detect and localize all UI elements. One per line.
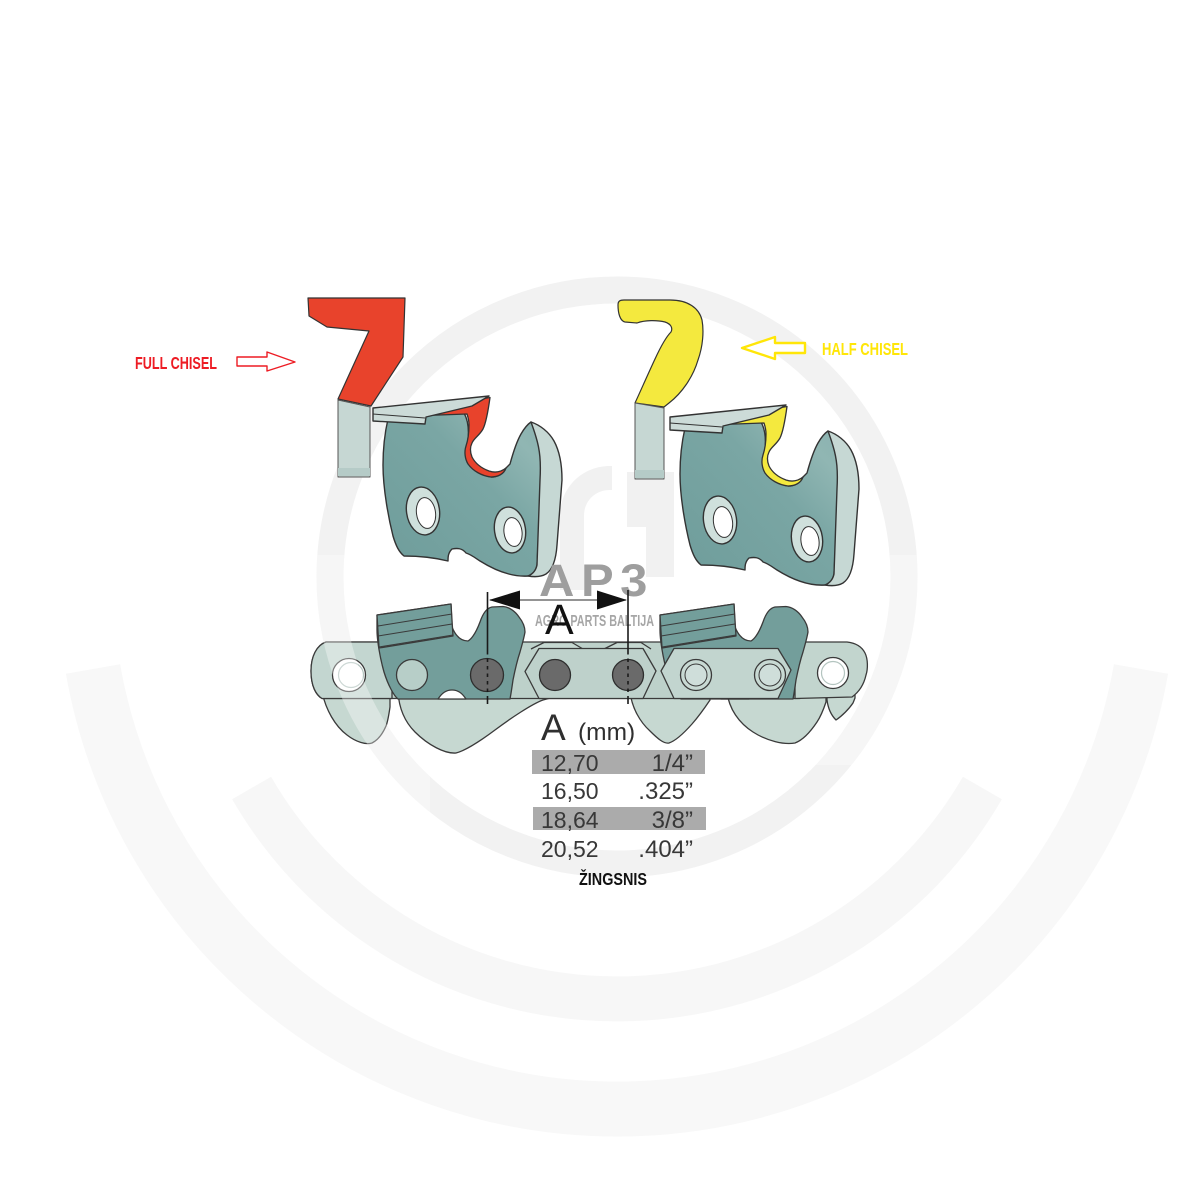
svg-text:12,70: 12,70: [541, 750, 599, 776]
svg-text:A: A: [541, 707, 566, 748]
svg-text:16,50: 16,50: [541, 778, 599, 804]
svg-text:ŽINGSNIS: ŽINGSNIS: [579, 868, 647, 889]
svg-text:20,52: 20,52: [541, 836, 599, 862]
svg-text:3/8”: 3/8”: [652, 807, 693, 834]
svg-text:18,64: 18,64: [541, 807, 599, 833]
svg-text:HALF CHISEL: HALF CHISEL: [822, 339, 908, 359]
svg-text:1/4”: 1/4”: [652, 750, 693, 777]
svg-text:A: A: [545, 596, 574, 644]
svg-text:.325”: .325”: [638, 778, 693, 805]
svg-text:(mm): (mm): [578, 719, 635, 746]
svg-text:.404”: .404”: [638, 836, 693, 863]
svg-text:FULL CHISEL: FULL CHISEL: [135, 353, 217, 373]
